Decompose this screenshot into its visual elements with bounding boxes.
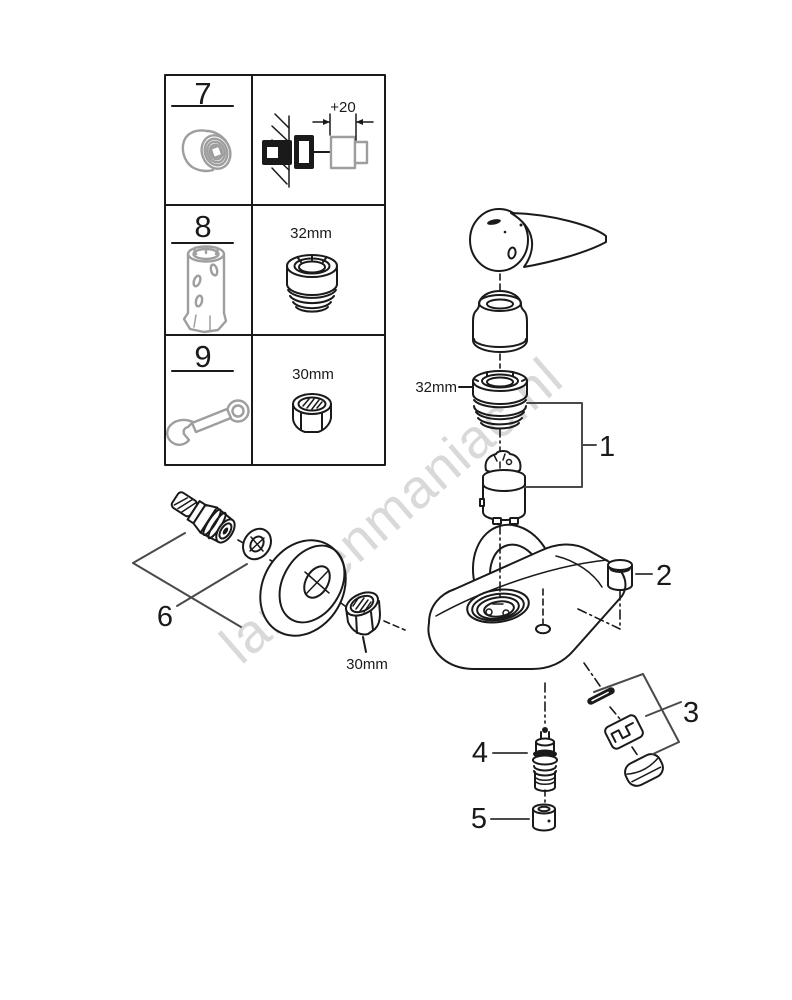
legend-number-8: 8 [194, 209, 211, 244]
cartridge [480, 451, 525, 524]
callout-1-label: 1 [599, 431, 615, 463]
extension-gray [331, 137, 355, 168]
callout-6-label: 6 [157, 601, 173, 633]
callout-3-label: 3 [683, 697, 699, 729]
callout-4-label: 4 [472, 737, 488, 769]
callout-5-label: 5 [471, 803, 487, 835]
size-label-32mm-legend: 32mm [290, 225, 332, 242]
handle-cap [473, 291, 527, 352]
dimension-label: +20 [330, 99, 355, 116]
nut-30mm-icon [293, 394, 331, 432]
legend-number-9: 9 [194, 339, 211, 374]
size-label-ring-nut: 32mm [415, 379, 457, 396]
size-label-30mm-legend: 30mm [292, 366, 334, 383]
parts-diagram-page: lampenmaniac.nl 7 [0, 0, 792, 1000]
callout-2-label: 2 [656, 560, 672, 592]
size-label-union-nut: 30mm [346, 656, 388, 673]
parts-diagram: lampenmaniac.nl 7 [0, 0, 792, 1000]
